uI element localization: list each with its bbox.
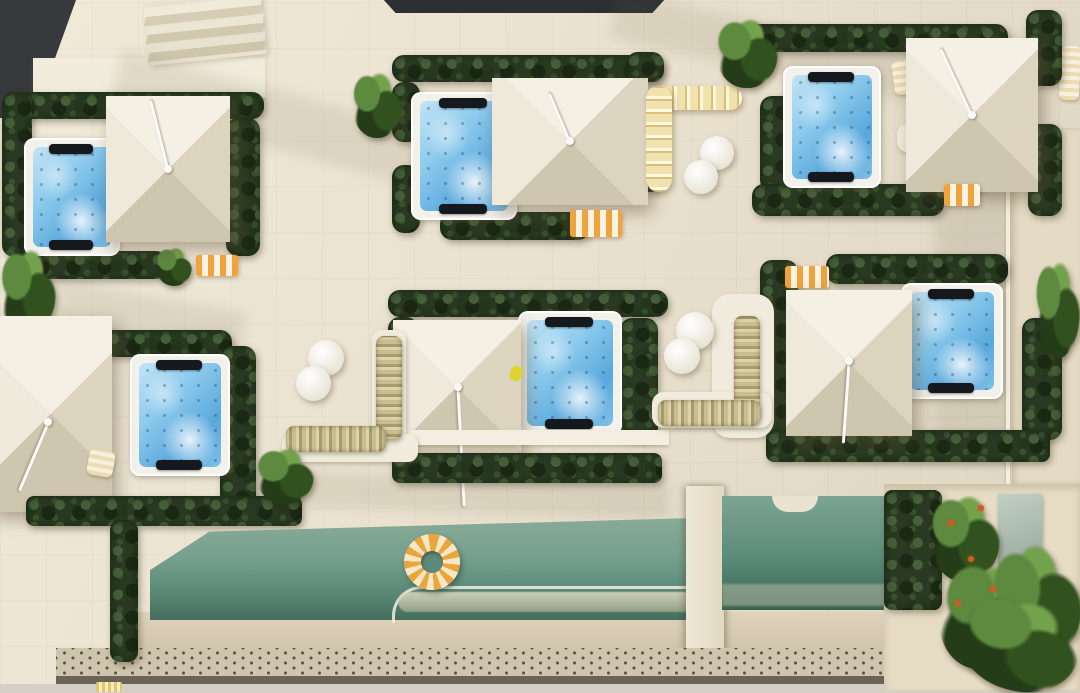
headrest	[49, 144, 93, 154]
headrest	[928, 383, 975, 393]
terrace-parapet	[385, 430, 669, 445]
striped-cushions	[286, 426, 386, 452]
right-edge-palm	[1035, 258, 1080, 358]
umbrella-apex	[44, 418, 52, 426]
umbrella-apex	[164, 165, 172, 173]
hot-tub-water	[527, 320, 613, 426]
hot-tub-3	[783, 66, 881, 188]
staircase	[143, 0, 267, 66]
potted-palm	[156, 246, 192, 286]
striped-awning	[785, 266, 829, 288]
umbrella-apex	[454, 383, 462, 391]
headrest	[439, 204, 488, 214]
side-table	[684, 160, 718, 194]
headrest	[808, 172, 853, 182]
hot-tub-water	[910, 292, 994, 390]
orange-flower	[990, 586, 996, 592]
orange-flower	[955, 600, 961, 606]
umbrella-apex	[845, 357, 853, 365]
hot-tub-water	[792, 75, 872, 179]
headrest	[156, 460, 202, 470]
striped-awning	[570, 210, 622, 237]
hot-tub-6	[901, 283, 1003, 399]
scalloped-banquette	[646, 86, 672, 192]
right-pool	[722, 496, 886, 610]
pool-bridge	[686, 486, 724, 668]
hot-tub-5	[518, 311, 622, 435]
hot-tub-4	[130, 354, 230, 476]
striped-awning	[196, 255, 238, 276]
hedge-strip	[26, 496, 302, 526]
yellow-striped-object	[96, 682, 122, 692]
hot-tub-water	[33, 147, 111, 247]
hedge-strip	[226, 118, 260, 256]
headrest	[545, 317, 593, 327]
hedge-strip	[392, 453, 662, 483]
headrest	[156, 360, 202, 370]
headrest	[439, 98, 488, 108]
float-hole	[421, 551, 443, 573]
rooftop-render	[0, 0, 1080, 693]
side-table	[664, 338, 700, 374]
potted-palm	[352, 70, 402, 138]
striped-awning	[944, 184, 980, 206]
potted-palm	[716, 16, 778, 88]
umbrella-4	[0, 316, 112, 512]
umbrella-apex	[968, 111, 976, 119]
orange-flower	[968, 556, 974, 562]
umbrella-apex	[566, 137, 574, 145]
orange-flower	[948, 520, 954, 526]
headrest	[928, 289, 975, 299]
ring-float	[404, 534, 460, 590]
towel-stack	[86, 448, 116, 478]
potted-palm	[256, 446, 314, 504]
dotted-deck	[56, 648, 1012, 678]
headrest	[808, 72, 853, 82]
hedge-strip	[620, 318, 658, 440]
climbing-vine	[110, 520, 138, 662]
headrest	[49, 240, 93, 250]
pool-entry-notch	[772, 496, 818, 512]
underwater-bench	[398, 592, 690, 612]
side-table	[296, 366, 331, 401]
hedge-strip	[826, 254, 1008, 284]
orange-flower	[978, 505, 984, 511]
striped-cushions	[376, 336, 402, 440]
hot-tub-water	[139, 363, 221, 467]
headrest	[545, 419, 593, 429]
underwater-bench	[722, 584, 886, 606]
striped-cushions	[658, 400, 760, 426]
